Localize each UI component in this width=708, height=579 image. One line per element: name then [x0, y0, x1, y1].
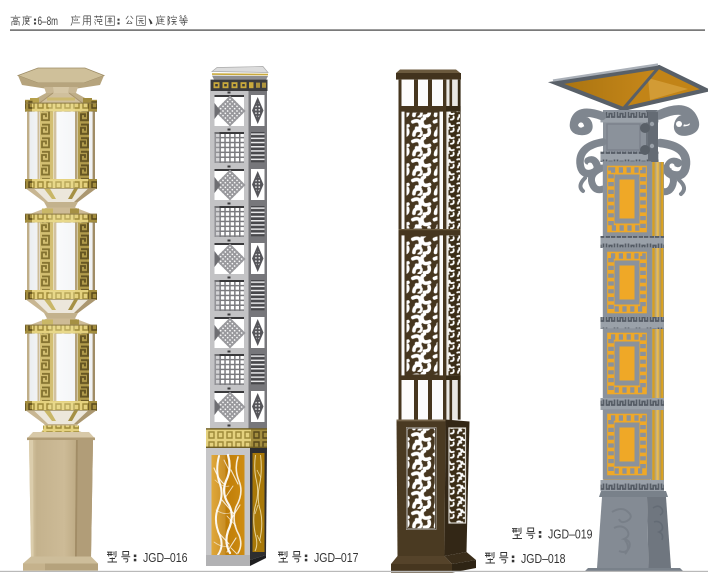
svg-text:JGD–016: JGD–016: [143, 550, 188, 565]
svg-text:JGD–018: JGD–018: [521, 551, 566, 566]
svg-text:JGD–017: JGD–017: [314, 550, 359, 565]
svg-text:JGD–019: JGD–019: [548, 526, 593, 541]
svg-text:6–8m: 6–8m: [38, 14, 59, 28]
